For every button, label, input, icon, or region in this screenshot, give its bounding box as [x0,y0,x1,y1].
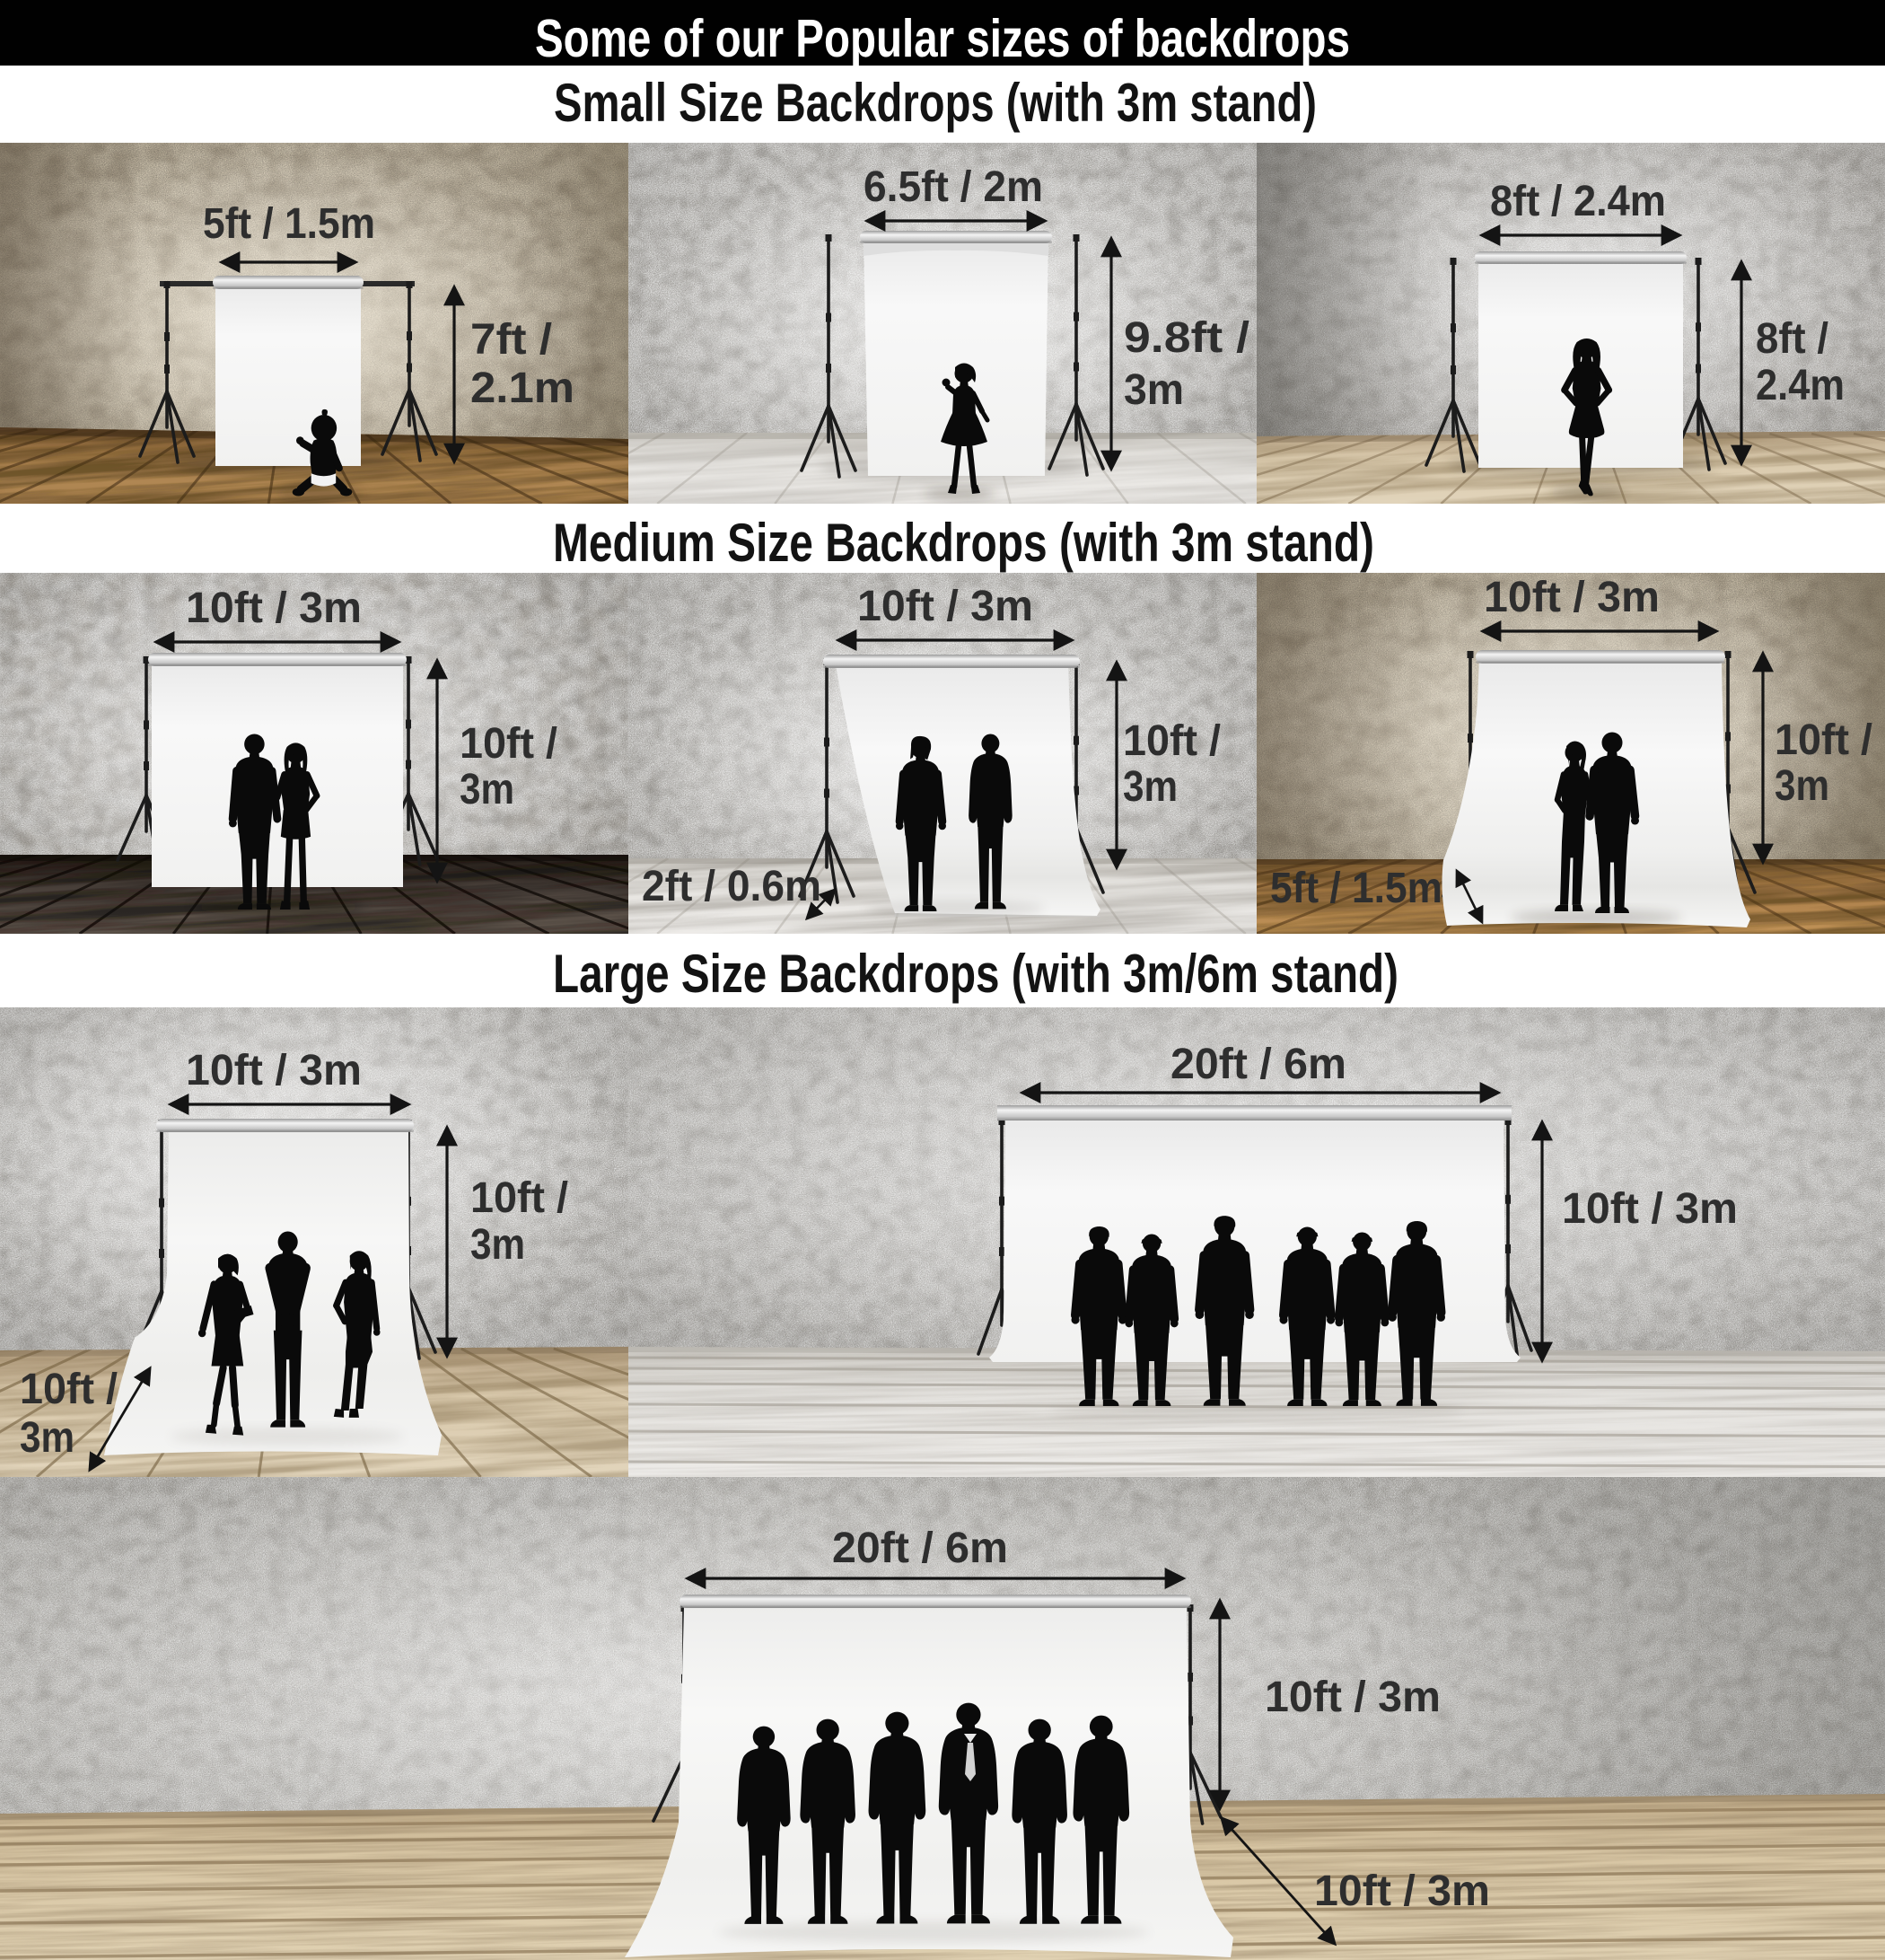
svg-text:2.4m: 2.4m [1756,362,1845,409]
svg-text:10ft /: 10ft / [460,720,557,768]
svg-text:10ft / 3m: 10ft / 3m [186,584,362,632]
svg-text:10ft / 3m: 10ft / 3m [1484,574,1660,621]
svg-text:10ft / 3m: 10ft / 3m [1314,1868,1490,1915]
svg-text:7ft /: 7ft / [470,316,552,364]
svg-text:8ft /: 8ft / [1756,315,1828,363]
svg-text:3m: 3m [470,1221,525,1269]
svg-text:3m: 3m [460,766,514,813]
svg-text:10ft /: 10ft / [1123,717,1221,765]
svg-text:3m: 3m [1775,762,1829,810]
svg-text:10ft /: 10ft / [470,1174,568,1222]
svg-text:20ft / 6m: 20ft / 6m [1170,1041,1346,1088]
svg-text:6.5ft / 2m: 6.5ft / 2m [864,163,1043,211]
svg-text:5ft / 1.5m: 5ft / 1.5m [203,200,375,248]
svg-text:10ft / 3m: 10ft / 3m [857,583,1033,630]
svg-text:3m: 3m [1123,763,1178,811]
svg-text:20ft / 6m: 20ft / 6m [832,1525,1008,1572]
svg-text:Small Size Backdrops (with 3m: Small Size Backdrops (with 3m stand) [554,73,1317,133]
svg-text:10ft /: 10ft / [20,1366,118,1413]
svg-text:10ft / 3m: 10ft / 3m [186,1047,362,1094]
svg-text:Some of our Popular sizes of b: Some of our Popular sizes of backdrops [535,9,1350,68]
svg-text:9.8ft /: 9.8ft / [1124,314,1249,362]
svg-text:10ft /: 10ft / [1775,716,1872,764]
svg-text:3m: 3m [1124,366,1184,414]
svg-text:Large Size Backdrops (with 3m/: Large Size Backdrops (with 3m/6m stand) [553,944,1398,1004]
svg-text:5ft / 1.5m: 5ft / 1.5m [1270,865,1442,912]
svg-text:2ft / 0.6m: 2ft / 0.6m [642,863,821,910]
svg-text:10ft / 3m: 10ft / 3m [1265,1674,1441,1721]
svg-text:2.1m: 2.1m [470,365,574,412]
svg-text:10ft / 3m: 10ft / 3m [1562,1185,1738,1233]
svg-text:Medium Size Backdrops (with 3m: Medium Size Backdrops (with 3m stand) [553,513,1374,573]
svg-text:8ft / 2.4m: 8ft / 2.4m [1490,178,1666,225]
svg-text:3m: 3m [20,1414,75,1462]
